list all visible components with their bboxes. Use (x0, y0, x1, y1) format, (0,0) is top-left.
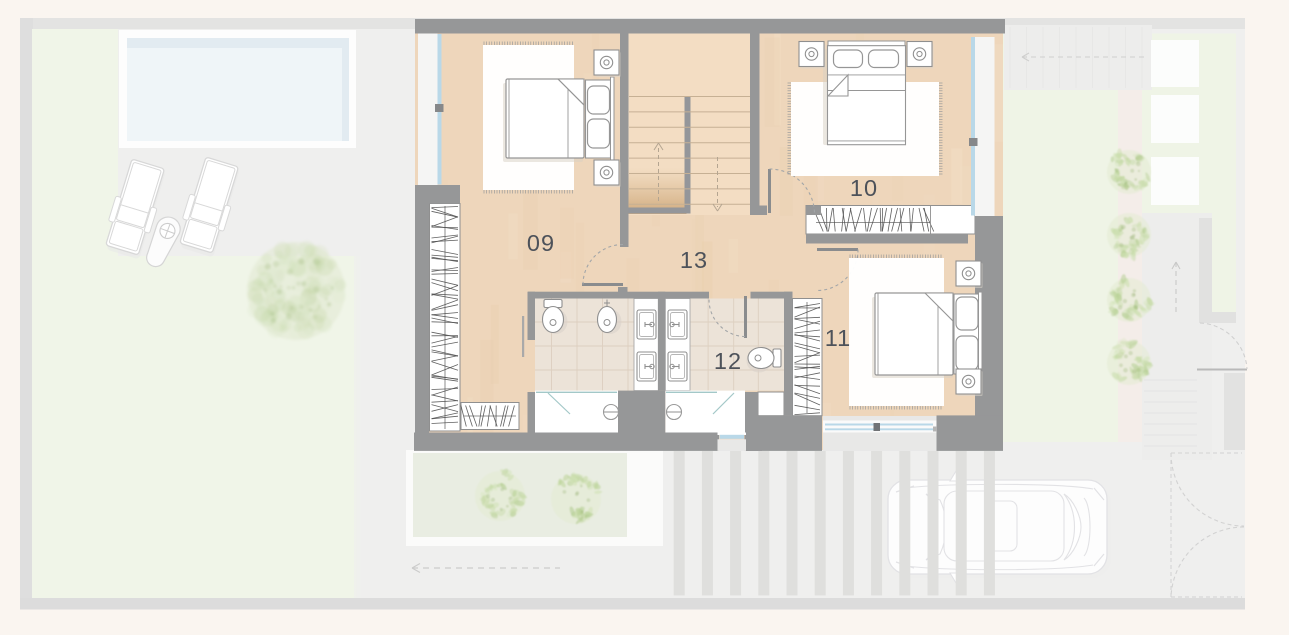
svg-text:11: 11 (825, 325, 851, 351)
svg-text:10: 10 (850, 175, 878, 201)
svg-text:13: 13 (680, 247, 708, 273)
svg-text:09: 09 (527, 230, 555, 256)
svg-text:12: 12 (714, 348, 742, 374)
